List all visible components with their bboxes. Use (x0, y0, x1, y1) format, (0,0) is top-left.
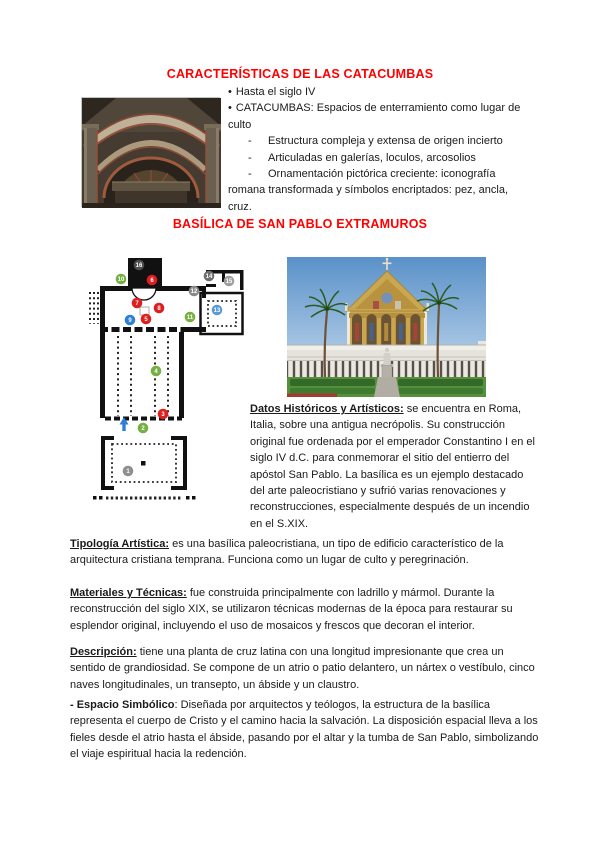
paragraph-text: tiene una planta de cruz latina con una … (70, 646, 535, 691)
list-item-text: Articuladas en galerías, loculos, arcoso… (268, 152, 476, 164)
dash-marker: - (248, 166, 268, 182)
basilica-photo (287, 257, 486, 397)
paragraph-text: se encuentra en Roma, Italia, sobre una … (250, 403, 535, 530)
paragraph-lead: Descripción: (70, 646, 137, 658)
basilica-illustration (287, 257, 486, 397)
bullet-marker: • (228, 102, 232, 114)
paragraph-lead: Materiales y Técnicas: (70, 587, 187, 599)
section-title-basilica: BASÍLICA DE SAN PABLO EXTRAMUROS (0, 217, 600, 231)
plan-marker-16: 16 (134, 260, 145, 271)
svg-text:14: 14 (206, 274, 213, 280)
dash-marker: - (248, 133, 268, 149)
paragraph-espacio-simbolico: - Espacio Simbólico: Diseñada por arquit… (70, 697, 540, 763)
plan-marker-5: 5 (141, 314, 152, 325)
svg-text:16: 16 (136, 263, 143, 269)
paragraph-datos-historicos: Datos Históricos y Artísticos: se encuen… (250, 401, 539, 532)
list-item-text: Estructura compleja y extensa de origen … (268, 135, 503, 147)
plan-marker-1: 1 (123, 466, 134, 477)
svg-text:12: 12 (191, 289, 198, 295)
plan-marker-7: 7 (132, 298, 143, 309)
plan-marker-12: 12 (189, 286, 200, 297)
plan-walls (90, 258, 244, 500)
catacumbas-list: •Hasta el siglo IV •CATACUMBAS: Espacios… (228, 84, 531, 215)
paragraph-tipologia: Tipología Artística: es una basílica pal… (70, 536, 540, 569)
paragraph-lead: Datos Históricos y Artísticos: (250, 403, 404, 415)
plan-marker-9: 9 (125, 315, 136, 326)
list-item: -Ornamentación pictórica creciente: icon… (228, 166, 531, 215)
svg-text:11: 11 (187, 315, 194, 321)
catacomb-photo (81, 97, 220, 207)
document-page: CARACTERÍSTICAS DE LAS CATACUMBAS (0, 0, 600, 848)
paragraph-descripcion: Descripción: tiene una planta de cruz la… (70, 644, 540, 693)
list-item-text: Hasta el siglo IV (236, 86, 315, 98)
list-item: •CATACUMBAS: Espacios de enterramiento c… (228, 100, 531, 133)
paragraph-lead: Tipología Artística: (70, 538, 169, 550)
plan-marker-3: 3 (158, 409, 169, 420)
svg-text:15: 15 (226, 279, 233, 285)
list-item: -Articuladas en galerías, loculos, arcos… (228, 150, 531, 166)
plan-marker-11: 11 (185, 312, 196, 323)
plan-marker-15: 15 (224, 276, 235, 287)
dash-marker: - (248, 150, 268, 166)
plan-marker-10: 10 (116, 274, 127, 285)
plan-marker-13: 13 (212, 305, 223, 316)
list-item-text: CATACUMBAS: Espacios de enterramiento co… (228, 102, 520, 130)
paragraph-lead: - Espacio Simbólico (70, 699, 175, 711)
section-title-catacumbas: CARACTERÍSTICAS DE LAS CATACUMBAS (0, 67, 600, 81)
paragraph-materiales: Materiales y Técnicas: fue construida pr… (70, 585, 540, 634)
list-item: -Estructura compleja y extensa de origen… (228, 133, 531, 149)
basilica-floor-plan: 1 2 3 4 5 6 7 8 9 10 11 12 13 14 15 16 (88, 258, 245, 512)
plan-marker-8: 8 (154, 303, 165, 314)
list-item: •Hasta el siglo IV (228, 84, 531, 100)
bullet-marker: • (228, 86, 232, 98)
plan-marker-2: 2 (138, 423, 149, 434)
plan-marker-14: 14 (204, 271, 215, 282)
plan-marker-6: 6 (147, 275, 158, 286)
plan-marker-4: 4 (151, 366, 162, 377)
floor-plan-illustration: 1 2 3 4 5 6 7 8 9 10 11 12 13 14 15 16 (88, 258, 245, 512)
svg-text:13: 13 (214, 308, 221, 314)
catacomb-illustration (82, 98, 221, 208)
svg-text:10: 10 (118, 277, 125, 283)
list-item-text: Ornamentación pictórica creciente: icono… (228, 168, 508, 213)
